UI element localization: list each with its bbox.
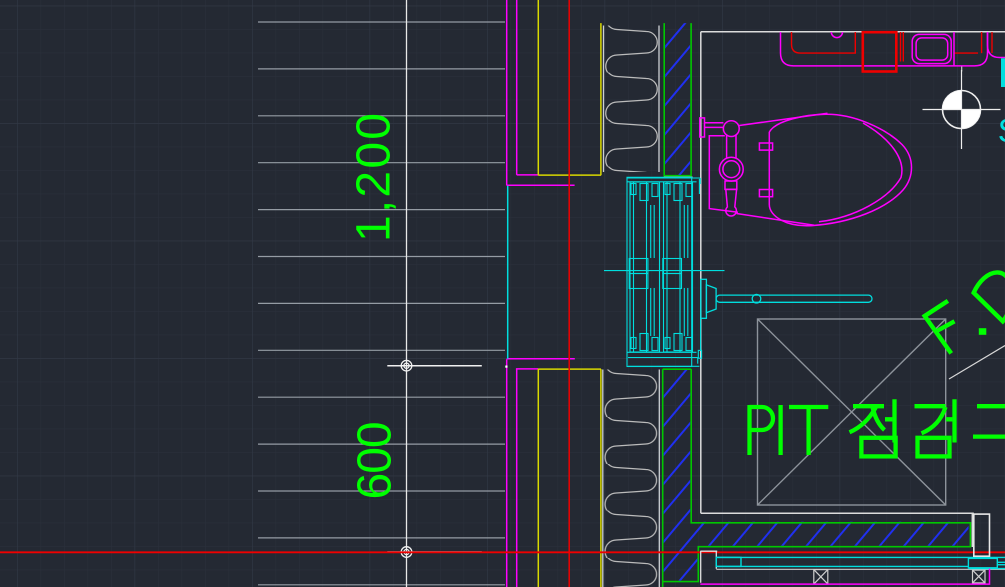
svg-text:S: S	[998, 112, 1005, 149]
svg-text:1,200: 1,200	[348, 111, 401, 242]
svg-text:600: 600	[349, 422, 402, 499]
